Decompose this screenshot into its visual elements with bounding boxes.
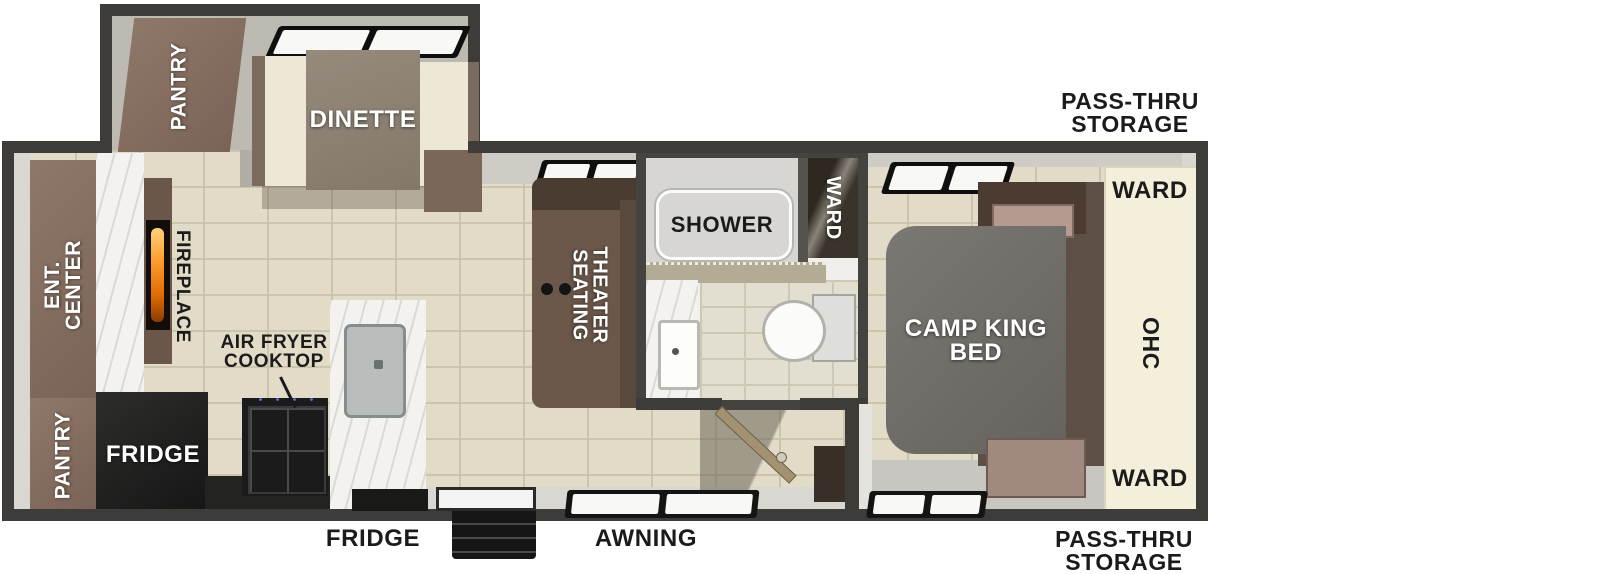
main-wall-top [468, 141, 1208, 153]
ward-closet-label: WARD [808, 160, 858, 256]
ward-top-label: WARD [1104, 176, 1196, 206]
slideout-wall-left [100, 4, 112, 150]
entry-door [436, 487, 536, 511]
cooktop-knobs [252, 397, 318, 402]
theater-seating-label: THEATER SEATING [526, 198, 654, 392]
ent-center-text: ENT. CENTER [42, 240, 84, 330]
ohc-label: OHC [1114, 300, 1186, 386]
nightstand-bottom [986, 438, 1086, 498]
pantry-slideout-text: PANTRY [169, 42, 190, 130]
fireplace-wall-counter [96, 153, 144, 405]
ohc-text: OHC [1138, 317, 1161, 370]
ward-closet-text: WARD [823, 176, 843, 240]
bedroom-bottom-window-icon [866, 491, 988, 518]
sink-drain [374, 360, 383, 369]
bath-sink-drain [672, 348, 679, 355]
kitchen-sink [344, 324, 406, 418]
pass-thru-storage-bottom-label: PASS-THRU STORAGE [1032, 526, 1216, 574]
main-bottom-window-icon [565, 490, 760, 518]
shower-label: SHOWER [648, 210, 796, 240]
main-wall-left [2, 141, 14, 521]
floorplan-canvas: PANTRY DINETTE ENT. CENTER FIREPLACE PAN… [0, 0, 1600, 574]
entry-steps [452, 511, 536, 559]
bath-sink [658, 320, 700, 390]
bedroom-partition-wall [845, 404, 859, 512]
left-wall-lining [11, 150, 31, 490]
awning-label: AWNING [578, 524, 714, 554]
pantry-slideout-label: PANTRY [146, 30, 212, 142]
air-fryer-label: AIR FRYER COOKTOP [206, 330, 342, 376]
door-handle-icon [776, 452, 787, 463]
ent-center-label: ENT. CENTER [33, 172, 93, 398]
fireplace-label: FIREPLACE [152, 200, 214, 372]
dinette-label: DINETTE [300, 104, 426, 136]
fireplace-text: FIREPLACE [174, 229, 193, 342]
bedroom-step [814, 446, 845, 502]
fridge-label: FRIDGE [98, 438, 208, 472]
slideout-wall-top [100, 4, 480, 16]
camp-king-bed-label: CAMP KING BED [886, 312, 1066, 370]
toilet [762, 300, 826, 362]
pantry-lower-label: PANTRY [33, 402, 93, 508]
main-wall-right [1196, 141, 1208, 521]
theater-seating-text: THEATER SEATING [570, 246, 610, 343]
ward-bottom-label: WARD [1104, 464, 1196, 494]
shower-ward-divider-wall [798, 158, 808, 262]
pass-thru-storage-top-label: PASS-THRU STORAGE [1038, 86, 1222, 140]
corner-cabinet [424, 150, 482, 212]
pantry-lower-text: PANTRY [53, 411, 74, 499]
fridge-vent-panel [352, 489, 428, 511]
cooktop-grates [248, 406, 326, 494]
main-wall-top-left [2, 141, 112, 153]
fridge-exterior-label: FRIDGE [318, 524, 428, 554]
bathroom-wall-bottom-left [636, 398, 722, 410]
